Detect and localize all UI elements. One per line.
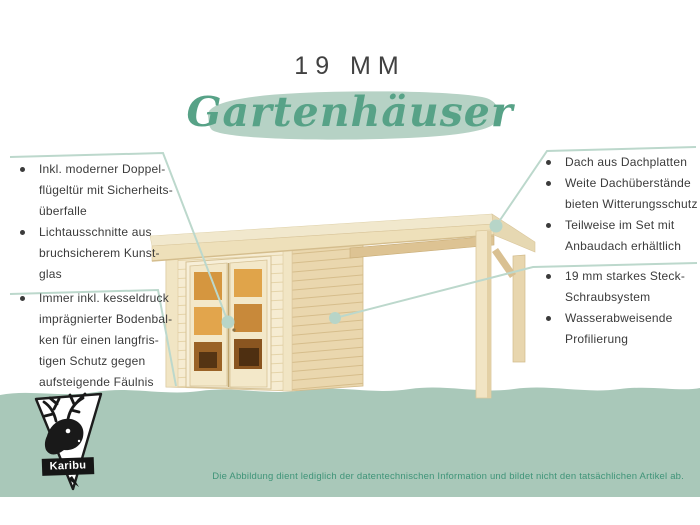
canopy-front-post-shade — [487, 231, 491, 398]
bullet-item: Weite Dachüberstände bieten Witterungssc… — [540, 173, 698, 215]
bullet-text: Dach aus Dachplatten — [565, 152, 687, 173]
bullet-dot-icon — [546, 181, 551, 186]
bullet-item: Dach aus Dachplatten — [540, 152, 698, 173]
callout-dot-roof — [490, 220, 503, 233]
bullet-text: Inkl. moderner Doppel- flügeltür mit Sic… — [39, 159, 173, 222]
callout-left-bottom: Immer inkl. kesseldruck imprägnierter Bo… — [14, 288, 184, 393]
bullet-item: Wasserabweisende Profilierung — [540, 308, 698, 350]
brand-label: Karibu — [42, 457, 95, 476]
callout-dot-wall — [329, 312, 341, 324]
bullet-dot-icon — [546, 223, 551, 228]
bullet-text: Weite Dachüberstände bieten Witterungssc… — [565, 173, 698, 215]
bullet-dot-icon — [546, 274, 551, 279]
door-pane — [234, 269, 262, 297]
bullet-dot-icon — [546, 316, 551, 321]
bullet-item: Lichtausschnitte aus bruchsicherem Kunst… — [14, 222, 179, 285]
callout-left-top: Inkl. moderner Doppel- flügeltür mit Sic… — [14, 159, 179, 285]
bullet-text: Teilweise im Set mit Anbaudach erhältlic… — [565, 215, 681, 257]
bullet-dot-icon — [20, 230, 25, 235]
bullet-text: Wasserabweisende Profilierung — [565, 308, 672, 350]
garden-house-illustration — [150, 214, 535, 398]
door-pane — [234, 304, 262, 332]
door-pane-shadow — [239, 348, 259, 366]
door-pane — [194, 307, 222, 335]
roof-right-end — [492, 214, 535, 252]
thickness-label: 19 MM — [0, 52, 700, 81]
bullet-text: Immer inkl. kesseldruck imprägnierter Bo… — [39, 288, 172, 393]
door-pane-shadow — [199, 352, 217, 368]
side-wall — [292, 245, 363, 391]
deer-nose — [78, 440, 80, 442]
door-handle — [232, 328, 235, 331]
bullet-item: Teilweise im Set mit Anbaudach erhältlic… — [540, 215, 698, 257]
callout-right-top: Dach aus Dachplatten Weite Dachüberständ… — [540, 152, 698, 257]
bullet-item: Immer inkl. kesseldruck imprägnierter Bo… — [14, 288, 184, 393]
bullet-dot-icon — [20, 296, 25, 301]
callout-dot-door — [222, 316, 235, 329]
deer-eye — [66, 429, 71, 434]
bullet-text: Lichtausschnitte aus bruchsicherem Kunst… — [39, 222, 160, 285]
disclaimer-text: Die Abbildung dient lediglich der datent… — [212, 471, 684, 482]
bullet-item: Inkl. moderner Doppel- flügeltür mit Sic… — [14, 159, 179, 222]
bullet-item: 19 mm starkes Steck- Schraubsystem — [540, 266, 698, 308]
bullet-dot-icon — [546, 160, 551, 165]
promo-graphic: 19 MM Gartenhäuser Inkl. moderner Doppel… — [0, 0, 700, 525]
page-title: Gartenhäuser — [0, 88, 700, 136]
bullet-text: 19 mm starkes Steck- Schraubsystem — [565, 266, 685, 308]
callout-right-bottom: 19 mm starkes Steck- Schraubsystem Wasse… — [540, 266, 698, 350]
bullet-dot-icon — [20, 167, 25, 172]
corner-trim-right — [283, 250, 292, 391]
